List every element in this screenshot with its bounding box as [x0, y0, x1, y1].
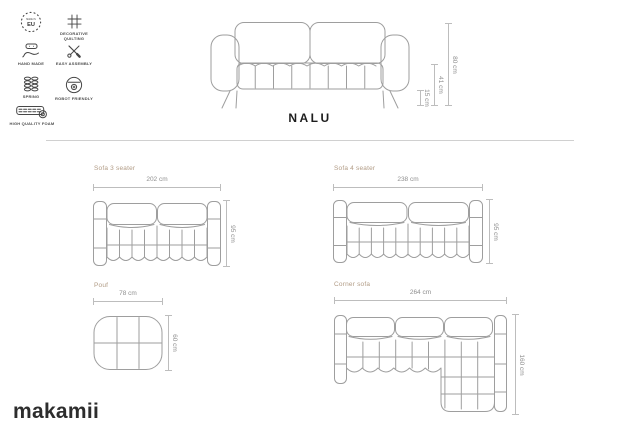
quilting-grid-icon: [67, 14, 82, 29]
dimension-total-height: 80 cm: [448, 23, 460, 106]
feature-label: DECORATIVE QUILTING: [55, 31, 93, 41]
made-in-text: MADE IN: [26, 18, 36, 21]
dimension-sofa4-depth: 95 cm: [489, 199, 501, 264]
section-divider: [46, 140, 574, 141]
dimension-value: 238 cm: [333, 176, 483, 184]
feature-spring: SPRING: [13, 76, 49, 99]
dimension-line: [93, 301, 163, 302]
product-title: NALU: [210, 111, 410, 125]
easy-assembly-icon: [66, 43, 82, 59]
dimension-value: 160 cm: [518, 354, 525, 375]
dimension-value: 80 cm: [451, 56, 458, 74]
dimension-value: 95 cm: [492, 223, 499, 241]
feature-label: EASY ASSEMBLY: [56, 61, 92, 66]
spec-sheet: MADE IN EU DECORATIVE QUILTING HAND MADE…: [0, 0, 620, 439]
dimension-line: [434, 64, 435, 106]
sofa-front-view-drawing: [210, 21, 410, 109]
dimension-sofa4-width: 238 cm: [333, 176, 483, 188]
dimension-value: 60 cm: [171, 334, 178, 352]
dimension-line: [93, 187, 221, 188]
dimension-value: 15 cm: [423, 89, 430, 107]
dimension-line: [168, 315, 169, 371]
dimension-line: [448, 23, 449, 106]
dimension-value: 202 cm: [93, 176, 221, 184]
dimension-line: [333, 187, 483, 188]
dimension-corner-width: 264 cm: [334, 289, 507, 301]
variant-label-sofa-3-seater: Sofa 3 seater: [94, 165, 135, 172]
feature-easy-assembly: EASY ASSEMBLY: [55, 43, 93, 66]
eu-badge-text: EU: [27, 22, 35, 28]
dimension-value: 78 cm: [93, 290, 163, 298]
variant-label-corner-sofa: Corner sofa: [334, 281, 370, 288]
dimension-pouf-depth: 60 cm: [168, 315, 180, 371]
corner-sofa-top-view-drawing: [334, 314, 507, 415]
feature-label: HIGH QUALITY FOAM: [10, 121, 55, 126]
dimension-sofa3-depth: 95 cm: [226, 200, 238, 267]
dimension-line: [226, 200, 227, 267]
made-in-eu-icon: MADE IN EU: [20, 11, 42, 33]
hand-made-icon: [22, 43, 41, 59]
feature-high-quality-foam: HIGH QUALITY FOAM: [9, 104, 55, 126]
feature-hand-made: HAND MADE: [13, 43, 49, 66]
dimension-leg-height: 15 cm: [420, 90, 432, 106]
foam-icon: [16, 104, 48, 119]
feature-made-in-eu: MADE IN EU: [13, 11, 49, 33]
brand-logo: makamii: [13, 400, 99, 424]
dimension-line: [334, 300, 507, 301]
feature-decorative-quilting: DECORATIVE QUILTING: [55, 14, 93, 41]
sofa-4-seater-top-view-drawing: [333, 199, 483, 264]
dimension-value: 95 cm: [229, 225, 236, 243]
dimension-seat-height: 41 cm: [434, 64, 446, 106]
dimension-value: 264 cm: [334, 289, 507, 297]
robot-vacuum-icon: [65, 76, 83, 94]
spring-icon: [22, 76, 40, 92]
dimension-line: [515, 314, 516, 415]
dimension-corner-depth: 160 cm: [515, 314, 527, 415]
pouf-top-view-drawing: [93, 315, 163, 371]
feature-label: SPRING: [23, 94, 40, 99]
dimension-pouf-width: 78 cm: [93, 290, 163, 302]
feature-label: HAND MADE: [18, 61, 44, 66]
feature-robot-friendly: ROBOT FRIENDLY: [55, 76, 93, 101]
dimension-line: [489, 199, 490, 264]
feature-label: ROBOT FRIENDLY: [55, 96, 93, 101]
dimension-value: 41 cm: [437, 76, 444, 94]
sofa-3-seater-top-view-drawing: [93, 200, 221, 267]
dimension-line: [420, 90, 421, 106]
dimension-sofa3-width: 202 cm: [93, 176, 221, 188]
variant-label-pouf: Pouf: [94, 282, 108, 289]
variant-label-sofa-4-seater: Sofa 4 seater: [334, 165, 375, 172]
